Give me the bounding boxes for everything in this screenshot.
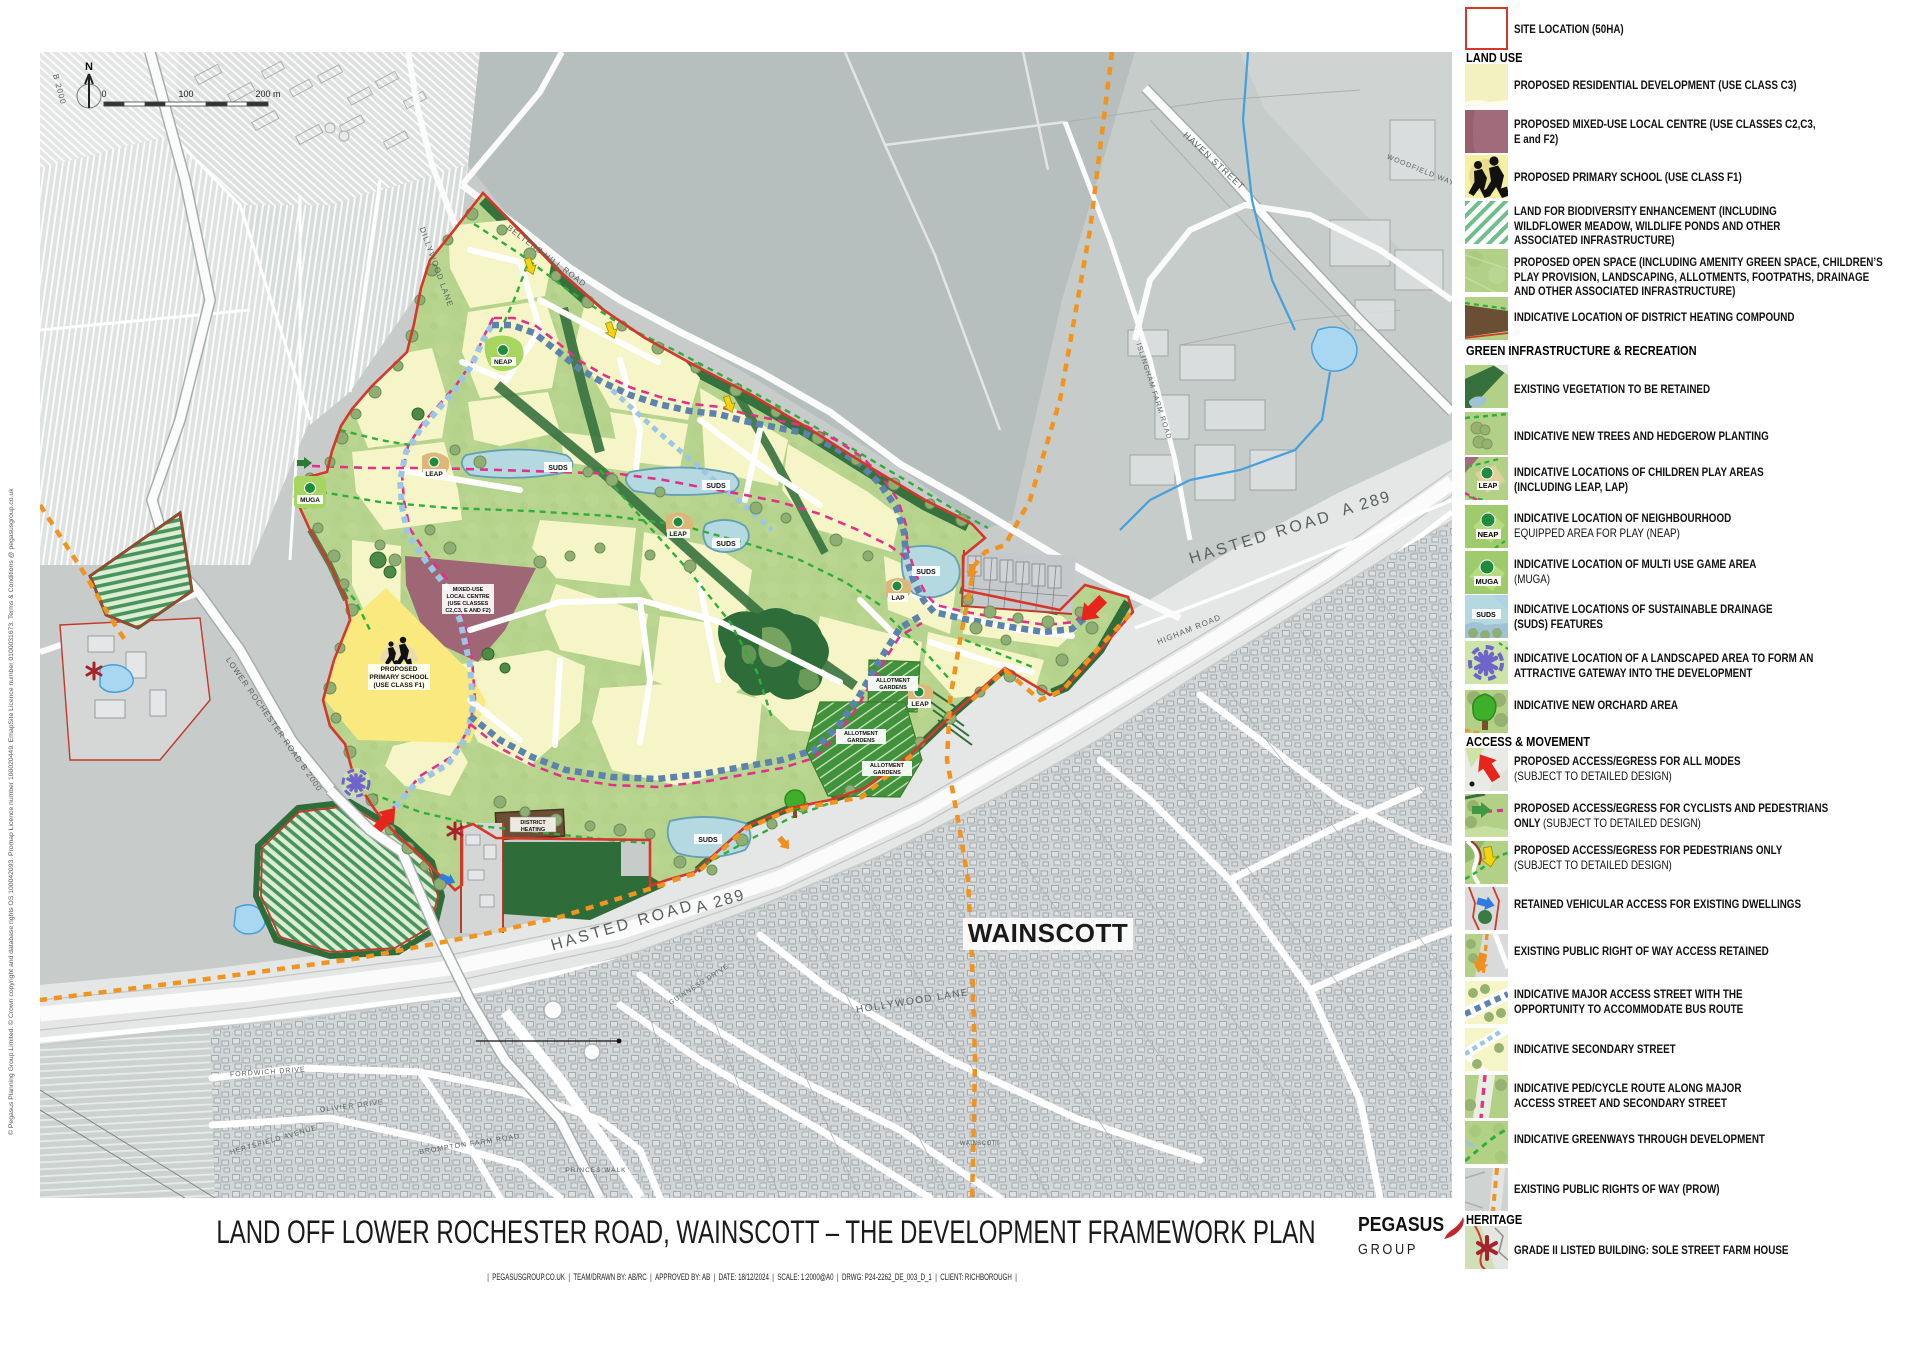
svg-text:(USE CLASSES: (USE CLASSES (448, 601, 489, 607)
svg-text:SUDS: SUDS (716, 541, 736, 548)
svg-text:SUDS: SUDS (548, 465, 568, 472)
svg-text:GARDENS: GARDENS (873, 770, 901, 776)
svg-text:SUDS: SUDS (1476, 612, 1496, 619)
svg-text:MUGA: MUGA (300, 497, 320, 504)
svg-text:LAP: LAP (892, 595, 906, 602)
svg-text:LEAP: LEAP (911, 701, 929, 708)
svg-text:MUGA: MUGA (1476, 577, 1499, 586)
svg-text:ALLOTMENT: ALLOTMENT (844, 731, 879, 737)
svg-text:NEAP: NEAP (494, 359, 513, 366)
svg-text:NEAP: NEAP (1478, 530, 1499, 539)
svg-text:200 m: 200 m (255, 89, 280, 99)
svg-text:DISTRICT: DISTRICT (520, 820, 546, 826)
svg-text:LEAP: LEAP (1479, 483, 1498, 490)
svg-text:ALLOTMENT: ALLOTMENT (876, 678, 911, 684)
svg-text:HEATING: HEATING (521, 827, 545, 833)
svg-text:PRIMARY SCHOOL: PRIMARY SCHOOL (369, 674, 428, 681)
svg-text:LOCAL CENTRE: LOCAL CENTRE (447, 594, 490, 600)
svg-text:N: N (85, 61, 93, 73)
svg-text:100: 100 (178, 89, 193, 99)
svg-text:WAINSCOTT: WAINSCOTT (960, 1141, 1000, 1147)
svg-text:0: 0 (101, 89, 106, 99)
svg-text:GARDENS: GARDENS (847, 738, 875, 744)
svg-text:SUDS: SUDS (698, 837, 718, 844)
svg-text:C2,C3, E AND F2): C2,C3, E AND F2) (445, 608, 491, 614)
svg-text:GARDENS: GARDENS (879, 685, 907, 691)
svg-text:SUDS: SUDS (706, 483, 726, 490)
svg-text:(USE CLASS F1): (USE CLASS F1) (374, 682, 425, 689)
svg-text:LEAP: LEAP (425, 471, 443, 478)
svg-text:MIXED-USE: MIXED-USE (453, 587, 484, 593)
svg-text:PROPOSED: PROPOSED (381, 666, 418, 673)
svg-text:WAINSCOTT: WAINSCOTT (968, 918, 1129, 948)
svg-text:SUDS: SUDS (916, 569, 936, 576)
svg-text:ALLOTMENT: ALLOTMENT (870, 763, 905, 769)
svg-text:LEAP: LEAP (669, 531, 687, 538)
svg-text:PRINCES WALK: PRINCES WALK (566, 1167, 627, 1174)
